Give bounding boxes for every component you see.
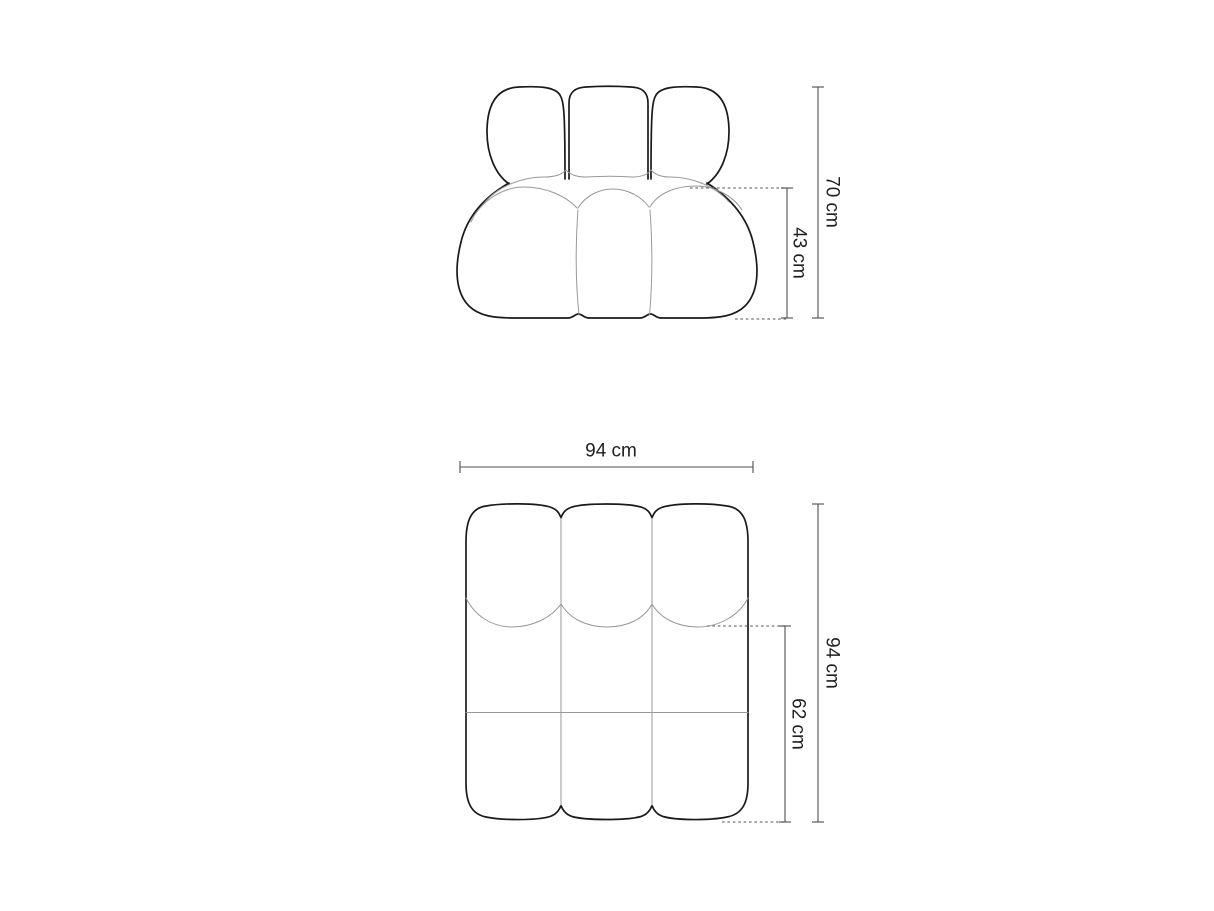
front-seat-divider-right [650, 210, 652, 315]
top-seat-depth-dimension: 62 cm [779, 626, 809, 822]
front-backrest-right-cushion [651, 87, 729, 184]
top-view-dimensions: 94 cm 94 cm 62 cm [460, 441, 843, 823]
front-view-upholstery-seams [471, 170, 742, 315]
top-backrest-arc-left [466, 598, 561, 627]
top-width-dimension: 94 cm [460, 441, 753, 474]
front-backrest-middle-cushion [569, 86, 648, 179]
front-total-height-label: 70 cm [822, 176, 843, 228]
top-backrest-arc-right [652, 598, 748, 627]
front-seat-cushion-top-right [650, 186, 742, 210]
front-view-dimensions: 70 cm 43 cm [690, 87, 843, 319]
top-seat-depth-label: 62 cm [788, 698, 809, 750]
top-view: 94 cm 94 cm 62 cm [460, 441, 843, 823]
top-view-outline [466, 504, 748, 820]
front-seat-height-label: 43 cm [789, 227, 810, 279]
top-view-upholstery-seams [466, 518, 748, 805]
drawing-canvas: 70 cm 43 cm [0, 0, 1214, 911]
top-backrest-arc-middle [561, 604, 652, 627]
furniture-dimension-drawing: 70 cm 43 cm [0, 0, 1214, 911]
top-width-label: 94 cm [585, 441, 637, 462]
front-seat-height-dimension: 43 cm [781, 188, 810, 318]
front-seat-cushion-top-left [471, 187, 577, 222]
front-total-height-dimension: 70 cm [812, 87, 843, 318]
top-view-furniture-outline [466, 504, 748, 820]
top-total-depth-dimension: 94 cm [812, 504, 843, 822]
front-view: 70 cm 43 cm [457, 86, 842, 319]
front-view-furniture-outline [457, 86, 757, 318]
front-seat-cushion-top-middle [578, 189, 649, 208]
top-total-depth-label: 94 cm [822, 637, 843, 689]
front-seat-divider-left [576, 210, 579, 315]
front-backrest-left-cushion [487, 87, 565, 184]
front-seat-outline [457, 183, 757, 318]
